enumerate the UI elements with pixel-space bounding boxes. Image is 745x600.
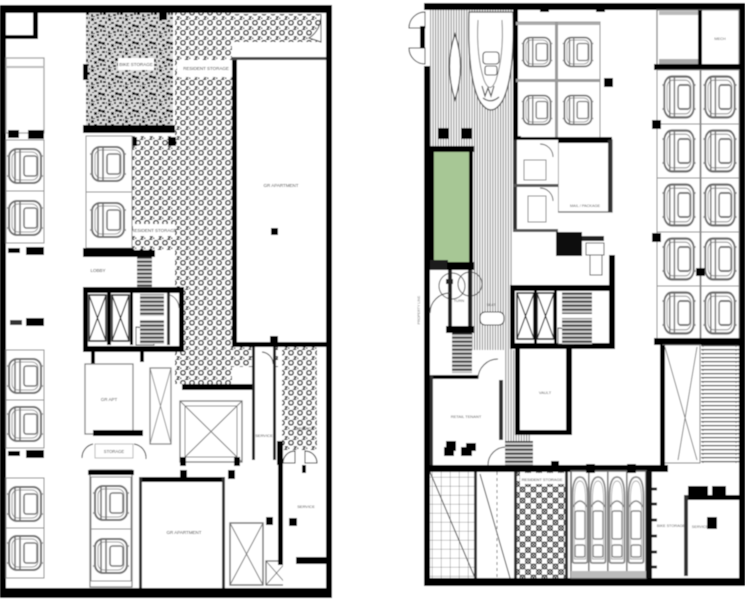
svg-text:SEAT: SEAT (486, 303, 496, 307)
svg-text:MECH: MECH (714, 37, 725, 41)
svg-text:SERVICE: SERVICE (255, 433, 273, 438)
svg-text:TURN: TURN (454, 299, 465, 303)
svg-text:STORAGE: STORAGE (104, 449, 125, 454)
svg-text:RESIDENT STORAGE: RESIDENT STORAGE (522, 477, 563, 482)
svg-text:LOBBY: LOBBY (90, 268, 105, 273)
svg-text:PROPERTY LINE: PROPERTY LINE (417, 295, 421, 324)
svg-text:GR APARTMENT: GR APARTMENT (166, 530, 201, 535)
svg-text:RESIDENT STORAGE: RESIDENT STORAGE (131, 228, 177, 233)
svg-text:RETAIL TENANT: RETAIL TENANT (451, 414, 482, 419)
svg-text:BIKE STORAGE: BIKE STORAGE (657, 524, 686, 528)
svg-text:SERVICE: SERVICE (692, 525, 709, 529)
svg-text:MAIL / PACKAGE: MAIL / PACKAGE (570, 204, 600, 208)
svg-text:VAULT: VAULT (539, 390, 552, 395)
svg-text:SERVICE: SERVICE (297, 504, 315, 509)
svg-text:GR APT: GR APT (101, 397, 118, 402)
svg-text:BIKE STORAGE: BIKE STORAGE (119, 62, 152, 67)
svg-text:SERVICE: SERVICE (296, 426, 314, 431)
svg-text:RESIDENT STORAGE: RESIDENT STORAGE (183, 66, 229, 71)
svg-text:GR APARTMENT: GR APARTMENT (263, 183, 298, 188)
